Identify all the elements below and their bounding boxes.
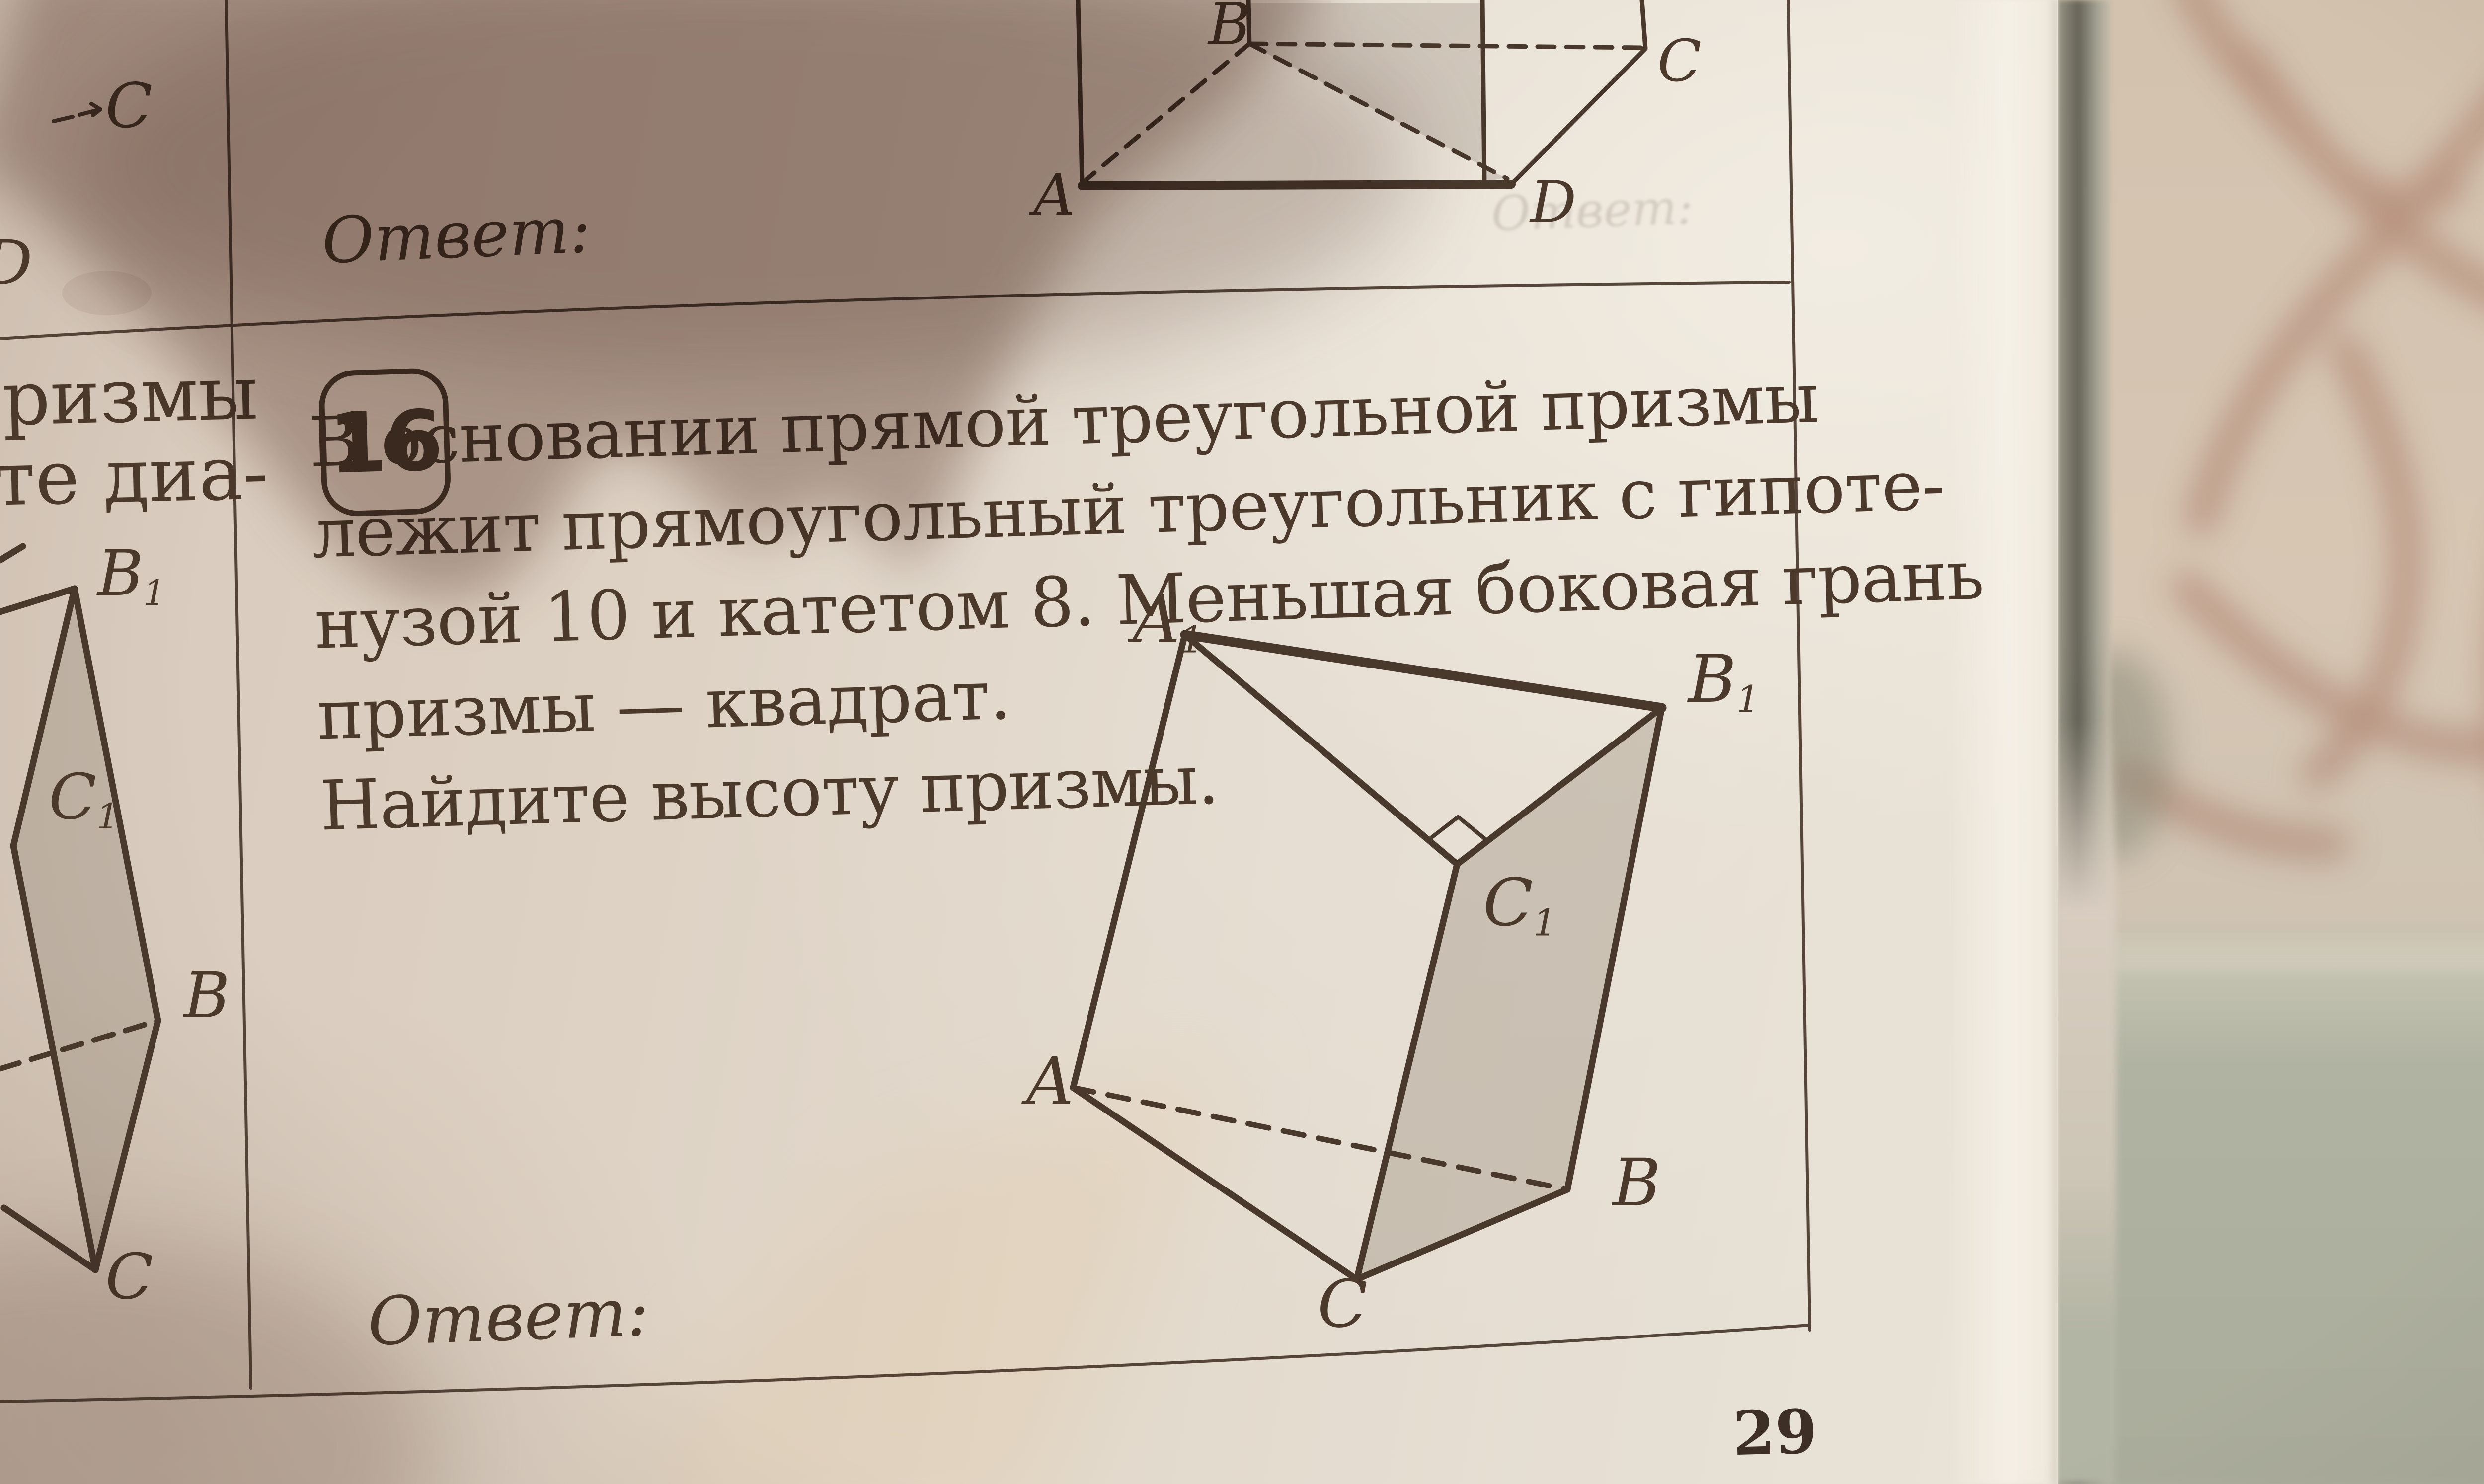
ghost-bleed-text: Ответ: [1490,179,1694,242]
left-prism-label-b: B [184,965,230,1027]
prism15-edge-dc [1511,49,1645,184]
left-column-text-2: те диа- [0,430,269,522]
bleed-through-smudge [62,271,152,315]
prism15-edge-right [1642,0,1645,49]
prism15-edge-middle [1482,0,1484,184]
prism15-label-c: C [1657,33,1702,90]
workbook-page: C D Ответ: B C A D Ответ: призмы те диа-… [0,0,2058,1484]
background-lower-flat-area [2067,973,2484,1484]
prism16-label-a1: A1 [1133,587,1203,659]
grid-row-divider [0,282,1789,339]
left-prism-label-b1: B1 [97,542,165,610]
left-prism-edge-offleft-bottom [4,1208,95,1270]
prism15-edge-ad [1082,184,1511,186]
cut-label-c: C [105,75,153,137]
answer-label-top: Ответ: [320,193,592,279]
prism16-label-b1: B1 [1688,647,1760,719]
diagram-prism-15 [1078,0,1645,186]
prism15-label-a: A [1033,167,1075,224]
background-surface [2037,0,2484,1484]
cut-label-d: D [0,232,32,294]
problem-16-text: 16 В основании прямой треугольной призмы… [308,352,1841,851]
left-prism-edge-corner [0,546,23,560]
grid-bottom-border [0,1325,1810,1402]
cut-diagram-arrow [54,104,100,121]
prism15-label-b: B [1208,0,1250,54]
page-number: 29 [1732,1396,1818,1469]
diagram-prism-left [0,546,158,1270]
prism15-dashed-ba [1086,44,1249,180]
answer-label-bottom: Ответ: [366,1273,650,1361]
left-column-text-1: призмы [0,350,259,444]
left-prism-edge-offleft-top [0,589,75,612]
grid-column-divider [226,0,251,1388]
prism15-shaded-section [1251,3,1505,182]
prism15-edge-left [1078,0,1082,183]
prism16-label-c1: C1 [1483,870,1556,942]
prism16-label-c: C [1318,1271,1368,1337]
prism16-label-b: B [1613,1150,1661,1216]
left-prism-label-c: C [105,1246,153,1308]
problem-number-badge: 16 [318,368,452,518]
left-prism-shaded-face [13,589,158,1270]
prism16-label-a: A [1026,1049,1074,1114]
photo-of-textbook-page: C D Ответ: B C A D Ответ: призмы те диа-… [0,0,2484,1484]
left-prism-label-c1: C1 [49,766,119,834]
